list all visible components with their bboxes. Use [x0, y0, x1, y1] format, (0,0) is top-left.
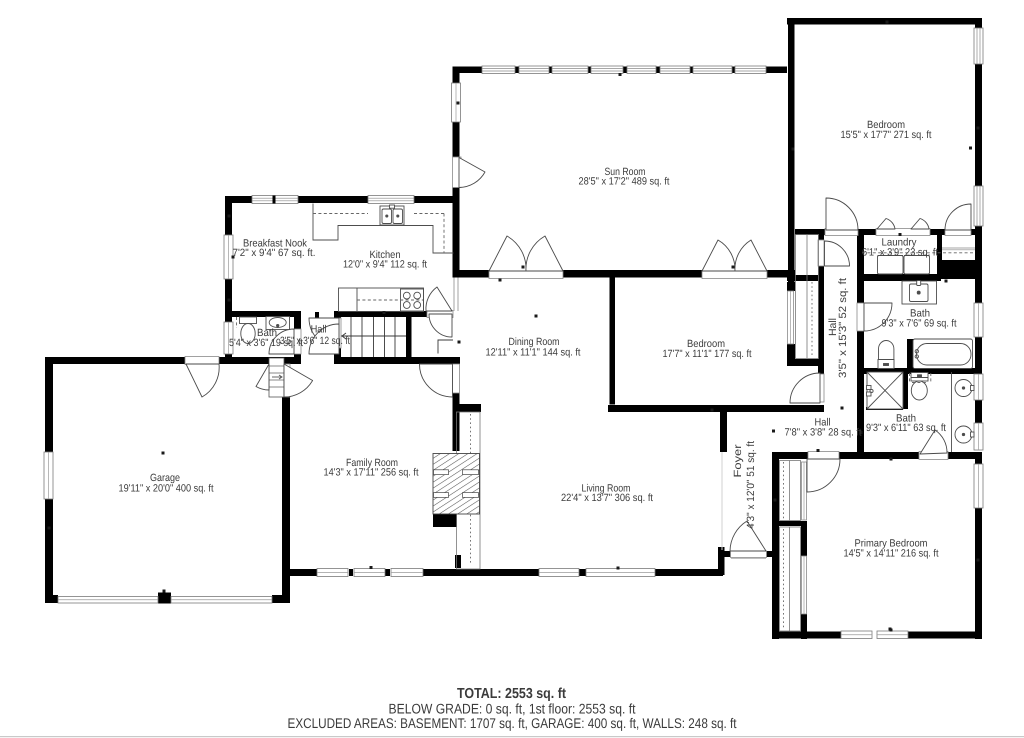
svg-text:15'5" x 17'7" 271 sq. ft: 15'5" x 17'7" 271 sq. ft: [841, 129, 932, 141]
svg-text:12'11" x 11'1" 144 sq. ft: 12'11" x 11'1" 144 sq. ft: [486, 347, 581, 359]
svg-text:9'3" x 7'6" 69 sq. ft: 9'3" x 7'6" 69 sq. ft: [882, 318, 957, 330]
svg-text:12'0" x 9'4" 112 sq. ft: 12'0" x 9'4" 112 sq. ft: [343, 259, 427, 271]
svg-text:3'5" x 15'3" 52 sq. ft: 3'5" x 15'3" 52 sq. ft: [837, 278, 849, 378]
svg-text:19'11" x 20'0" 400 sq. ft: 19'11" x 20'0" 400 sq. ft: [119, 483, 214, 495]
svg-text:7'2" x 9'4" 67 sq. ft.: 7'2" x 9'4" 67 sq. ft.: [233, 247, 316, 259]
svg-text:Foyer: Foyer: [732, 444, 744, 478]
svg-text:28'5" x 17'2" 489 sq. ft: 28'5" x 17'2" 489 sq. ft: [579, 176, 670, 188]
svg-text:22'4" x 13'7" 306 sq. ft: 22'4" x 13'7" 306 sq. ft: [561, 492, 653, 504]
svg-text:14'5" x 14'11" 216 sq. ft: 14'5" x 14'11" 216 sq. ft: [844, 548, 939, 560]
svg-text:EXCLUDED AREAS: BASEMENT: 1707: EXCLUDED AREAS: BASEMENT: 1707 sq. ft, G…: [288, 715, 737, 731]
svg-text:6'1" x 3'9" 23 sq. ft: 6'1" x 3'9" 23 sq. ft: [862, 247, 938, 259]
svg-text:7'8" x 3'8" 28 sq. ft: 7'8" x 3'8" 28 sq. ft: [785, 427, 862, 439]
svg-text:3'5" x 3'6" 12 sq. ft: 3'5" x 3'6" 12 sq. ft: [280, 335, 350, 347]
svg-text:Hall: Hall: [311, 324, 327, 336]
svg-text:9'3" x 6'11" 63 sq. ft: 9'3" x 6'11" 63 sq. ft: [866, 422, 946, 434]
svg-text:4'3" x 12'0" 51 sq. ft: 4'3" x 12'0" 51 sq. ft: [745, 441, 757, 529]
svg-text:17'7" x 11'1" 177 sq. ft: 17'7" x 11'1" 177 sq. ft: [663, 348, 752, 360]
svg-text:14'3" x 17'11" 256 sq. ft: 14'3" x 17'11" 256 sq. ft: [324, 467, 419, 479]
